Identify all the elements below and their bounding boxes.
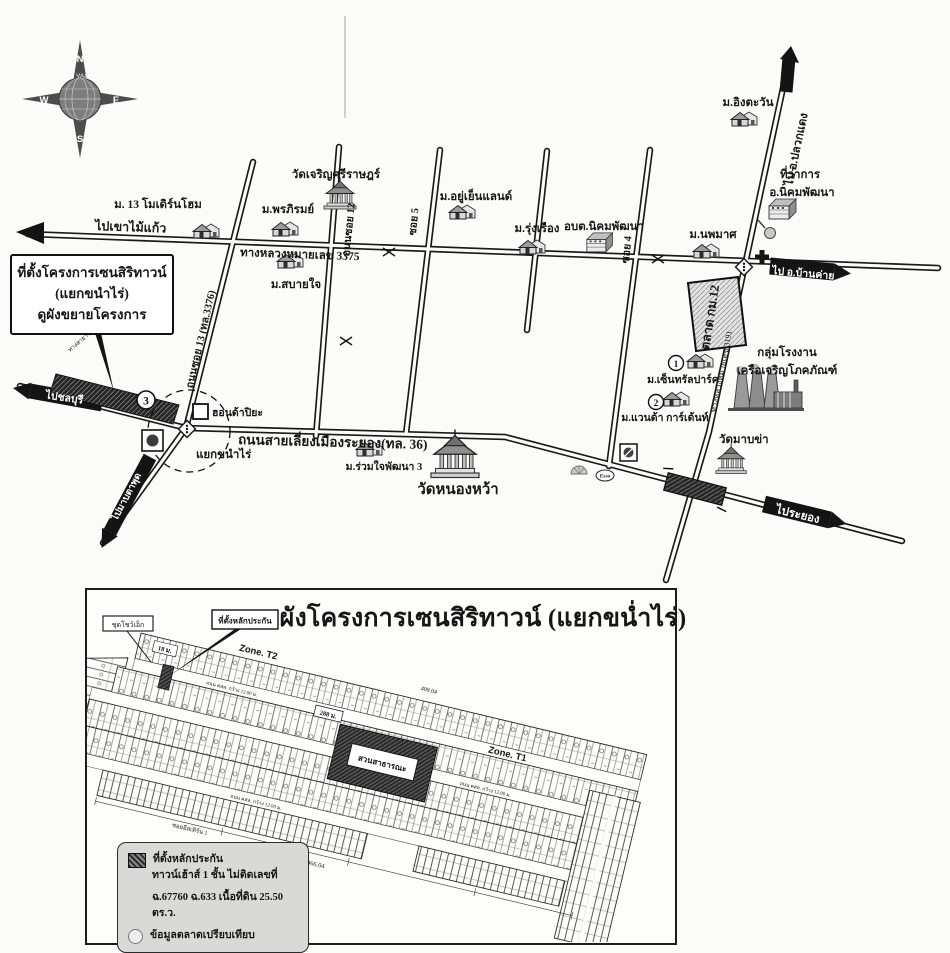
label-ruamjai: ม.ร่วมใจพัฒนา 3 xyxy=(346,459,423,473)
label-pornpirom: ม.พรภิรมย์ xyxy=(262,202,314,216)
culvert-mark-icon xyxy=(340,337,352,345)
legend-security-label: ที่ตั้งหลักประกัน xyxy=(153,852,223,868)
label-soi-bottom: ซอยอีสเทิร์น 1 xyxy=(171,821,208,837)
label-district-1: ที่ว่าการ xyxy=(780,165,821,181)
village-icon xyxy=(449,205,475,219)
label-noppamas: ม.นพมาศ xyxy=(689,229,737,241)
label-ingtawan: ม.อิงตะวัน xyxy=(723,96,774,109)
label-honda: ฮอนด้าปิยะ xyxy=(212,406,263,419)
badge-2: 2 xyxy=(654,399,659,409)
scanned-location-map-page: WORLD VALUATION N S W E xyxy=(0,0,950,950)
landmark-logo-icon xyxy=(142,430,163,451)
village-icon xyxy=(519,240,545,254)
label-wanda: ม.แวนด้า การ์เด้นท์ xyxy=(621,411,708,424)
label-yuyenland: ม.อยู่เย็นแลนด์ xyxy=(440,188,512,204)
label-watcharoen: วัดเจริญศรีราษฎร์ xyxy=(292,167,381,181)
legend-desc1: ทาวน์เฮ้าส์ 1 ชั้น ไม่ติดเลขที่ xyxy=(152,868,298,884)
label-centralpark: ม.เซ็นทรัลปาร์ค xyxy=(647,372,719,386)
legend-circle-swatch-icon xyxy=(128,929,143,944)
label-modernhome: ม. 13 โมเดิร์นโฮม xyxy=(114,196,202,211)
label-khaomaikaeo: ไปเขาไม้แก้ว xyxy=(93,218,167,236)
shell-logo-icon xyxy=(571,466,587,474)
project-callout-line2: (แยกขนำไร่) xyxy=(15,284,169,305)
label-cp-1: กลุ่มโรงงาน xyxy=(757,344,817,360)
dim-46604: 466.04 xyxy=(306,859,326,870)
project-callout: ที่ตั้งโครงการเซนสิริทาวน์ (แยกขนำไร่) ด… xyxy=(10,254,174,335)
seal-icon xyxy=(765,228,776,239)
label-security-callout: ที่ตั้งหลักประกัน xyxy=(218,615,272,626)
village-icon xyxy=(693,244,719,258)
village-icon xyxy=(731,112,757,126)
village-icon xyxy=(663,392,689,406)
label-district-2: อ.นิคมพัฒนา xyxy=(769,186,834,199)
esso-text: Esso xyxy=(599,474,611,480)
badge-1: 1 xyxy=(674,360,679,370)
dim-40804: 408.04 xyxy=(420,686,437,696)
badge-3: 3 xyxy=(143,396,149,408)
honda-building xyxy=(193,404,208,419)
site-plan-panel: ผังโครงการเซนสิริทาวน์ (แยกขน่ำไร่) xyxy=(85,588,677,945)
label-junction: แยกขนำไร่ xyxy=(196,447,252,461)
label-watmabkha: วัดมาบข่า xyxy=(719,433,769,446)
government-office-icon xyxy=(587,233,613,252)
village-icon xyxy=(193,224,219,238)
project-callout-line3: ดูผังขยายโครงการ xyxy=(15,305,169,326)
legend-hatch-swatch-icon xyxy=(128,853,146,868)
label-watnongwa: วัดหนองหว้า xyxy=(417,481,498,498)
project-callout-line1: ที่ตั้งโครงการเซนสิริทาวน์ xyxy=(15,263,169,284)
village-icon xyxy=(687,354,713,368)
label-soi5: ซอย 5 xyxy=(408,208,422,236)
callout-leader xyxy=(95,333,114,392)
label-obt: อบต.นิคมพัฒนา xyxy=(564,220,644,233)
district-office-icon xyxy=(769,199,796,219)
label-showunit: ชุดโชว์เอ็ก xyxy=(112,620,145,629)
label-sabaijai: ม.สบายใจ xyxy=(271,277,321,291)
arrow-west-3375 xyxy=(16,222,44,244)
legend-compare-label: ข้อมูลตลาดเปรียบเทียบ xyxy=(150,928,255,944)
label-cp-2: เครือเจริญโภคภัณฑ์ xyxy=(737,362,838,377)
temple-icon xyxy=(716,443,746,473)
plan-legend: ที่ตั้งหลักประกัน ทาวน์เฮ้าส์ 1 ชั้น ไม่… xyxy=(117,842,309,953)
legend-desc2: ฉ.67760 ฉ.633 เนื้อที่ดิน 25.50 ตร.ว. xyxy=(152,890,298,923)
village-icon xyxy=(272,222,298,236)
esso-logo-icon: Esso xyxy=(596,470,614,481)
gas-logo-icon xyxy=(620,444,637,461)
label-rungrueang: ม.รุ่งเรือง xyxy=(515,222,560,236)
